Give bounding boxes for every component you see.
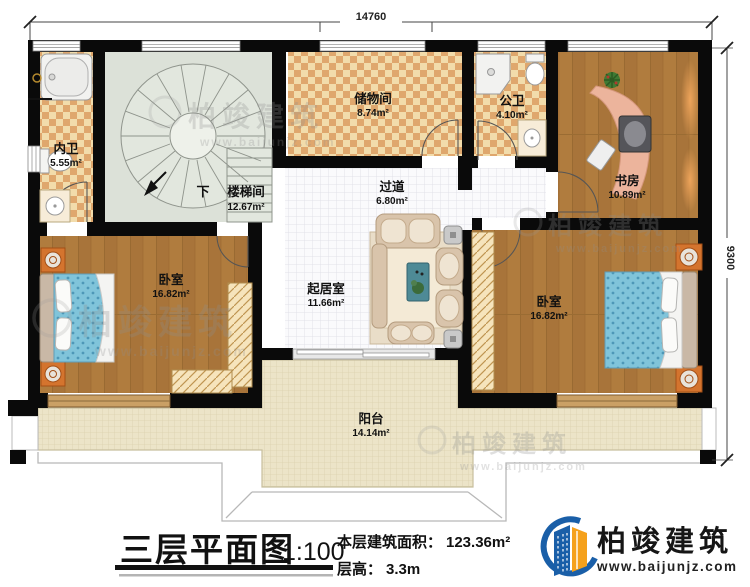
room-area-study: 10.89m² xyxy=(608,190,646,201)
svg-text:柏竣建筑: 柏竣建筑 xyxy=(188,100,324,132)
window xyxy=(478,41,545,51)
room-label-stair: 楼梯间 xyxy=(227,184,265,199)
room-area-stair: 12.67m² xyxy=(227,202,265,213)
brand-name: 柏竣建筑 xyxy=(597,524,733,558)
sink xyxy=(518,120,546,156)
sliding-door xyxy=(293,349,435,359)
svg-text:柏竣建筑: 柏竣建筑 xyxy=(452,430,572,458)
sink xyxy=(40,190,70,222)
window xyxy=(33,41,80,51)
window xyxy=(28,146,40,172)
room-label-storage: 储物间 xyxy=(353,91,392,106)
dim-top-value: 14760 xyxy=(356,11,387,23)
bathtub xyxy=(41,54,92,100)
floor-area-label: 本层建筑面积： xyxy=(337,533,442,551)
window xyxy=(320,41,425,51)
sofa-set xyxy=(370,214,463,348)
room-label-gongwei: 公卫 xyxy=(499,94,525,108)
shower xyxy=(476,54,510,94)
room-label-neiwei: 内卫 xyxy=(53,141,79,156)
stair-down-label: 下 xyxy=(196,184,209,199)
window xyxy=(142,41,240,51)
window xyxy=(568,41,668,51)
room-area-hallway: 6.80m² xyxy=(376,196,408,207)
svg-text:www.baijunjz.com: www.baijunjz.com xyxy=(199,135,336,149)
brand-logo: 柏竣建筑 www.baijunjz.com xyxy=(544,519,738,576)
sliding-door xyxy=(557,395,677,407)
toilet xyxy=(526,54,544,85)
room-label-study: 书房 xyxy=(614,173,639,188)
floor-plan: 14760 9300 柏竣建筑 www.baijunjz.com 柏竣建筑 ww… xyxy=(0,0,750,587)
room-area-bedroom-left: 16.82m² xyxy=(152,289,190,300)
room-area-balcony: 14.14m² xyxy=(352,428,390,439)
dim-right-value: 9300 xyxy=(724,246,736,270)
title-underline-2 xyxy=(119,574,333,577)
room-label-living: 起居室 xyxy=(306,281,345,296)
floor-area-value: 123.36m² xyxy=(446,534,510,551)
wardrobe xyxy=(472,232,494,390)
room-area-neiwei: 5.55m² xyxy=(50,158,82,169)
brand-logo-icon xyxy=(544,519,595,576)
floor-height-label: 层高： xyxy=(337,560,382,578)
title-block: 三层平面图 1:100 本层建筑面积： 123.36m² 层高： 3.3m xyxy=(115,531,510,578)
room-area-storage: 8.74m² xyxy=(357,108,389,119)
floor-height-value: 3.3m xyxy=(386,561,420,578)
room-area-gongwei: 4.10m² xyxy=(496,110,528,121)
brand-website: www.baijunjz.com xyxy=(596,559,738,574)
plant xyxy=(604,72,620,88)
room-area-bedroom-right: 16.82m² xyxy=(530,311,568,322)
room-label-bedroom-left: 卧室 xyxy=(158,272,184,287)
svg-text:www.baijunjz.com: www.baijunjz.com xyxy=(94,343,248,359)
svg-text:柏竣建筑: 柏竣建筑 xyxy=(78,303,238,342)
room-area-living: 11.66m² xyxy=(308,298,345,309)
svg-text:www.baijunjz.com: www.baijunjz.com xyxy=(555,243,683,255)
title-underline xyxy=(115,565,333,570)
computer-monitor xyxy=(619,116,651,152)
sliding-door xyxy=(48,395,170,407)
svg-text:柏竣建筑: 柏竣建筑 xyxy=(548,212,668,240)
room-label-bedroom-right: 卧室 xyxy=(536,294,562,309)
page-title: 三层平面图 xyxy=(120,531,295,568)
svg-text:www.baijunjz.com: www.baijunjz.com xyxy=(459,461,587,473)
room-label-balcony: 阳台 xyxy=(358,411,383,426)
plan-scale: 1:100 xyxy=(282,538,345,566)
room-label-hallway: 过道 xyxy=(379,179,405,194)
